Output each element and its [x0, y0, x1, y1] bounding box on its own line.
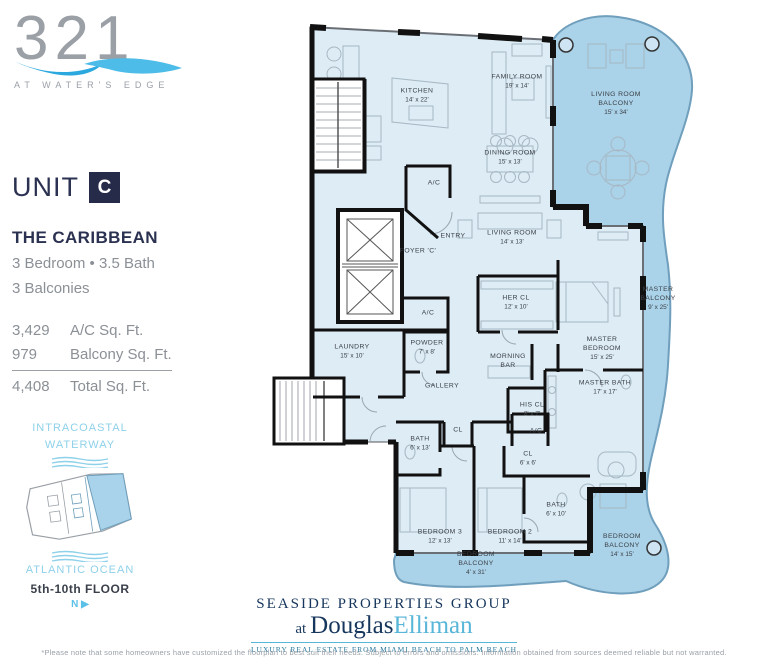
elevator-core: [338, 210, 402, 322]
brokerage-brand: atDouglasElliman: [0, 613, 768, 639]
floorplan-page: 321 AT WATER'S EDGE UNIT C THE CARIBBEAN…: [0, 0, 768, 664]
brand-elliman: Elliman: [394, 612, 473, 639]
stairwell-top: [313, 79, 364, 171]
brand-at: at: [295, 621, 306, 637]
disclaimer-text: *Please note that some homeowners have c…: [0, 648, 768, 657]
stairwell-bottom: [274, 378, 344, 444]
floorplan-drawing: [0, 0, 768, 664]
brokerage-group-name: SEASIDE PROPERTIES GROUP: [0, 596, 768, 613]
brand-douglas: Douglas: [310, 612, 393, 639]
